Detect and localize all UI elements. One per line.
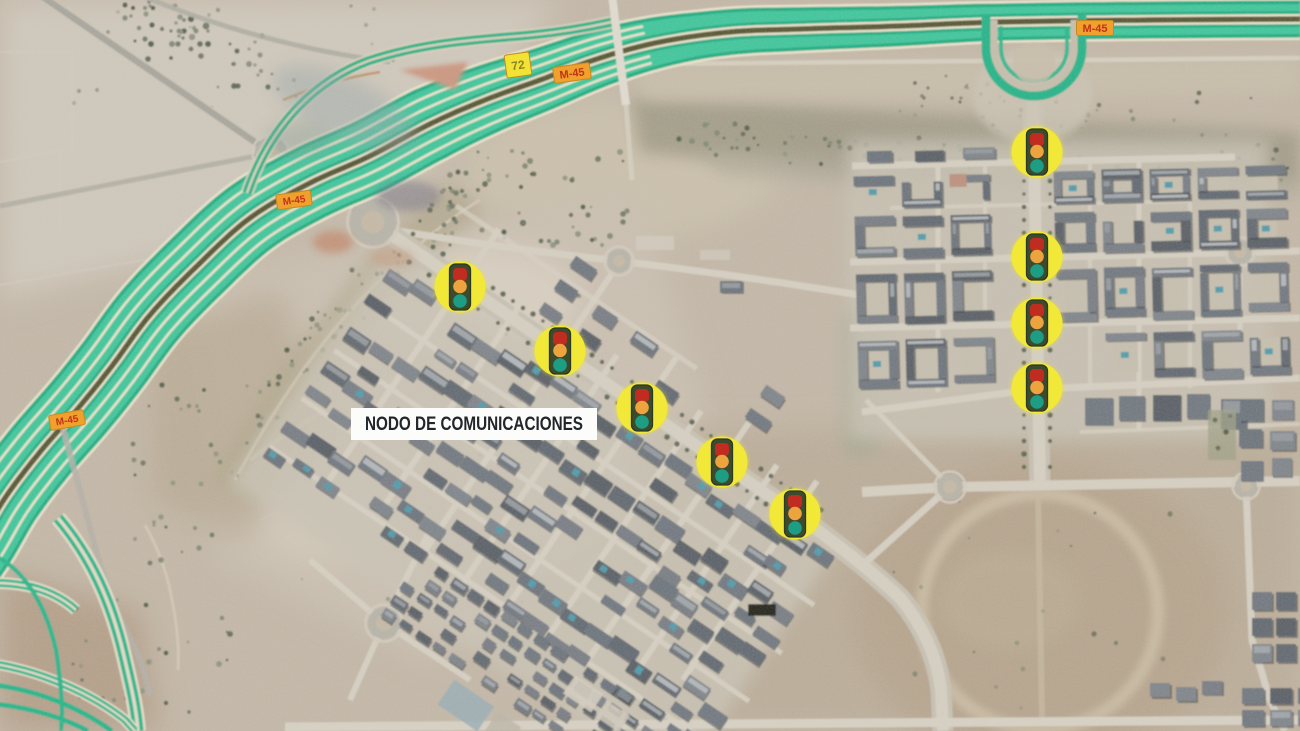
svg-text:72: 72 xyxy=(510,57,525,73)
svg-text:NODO DE COMUNICACIONES: NODO DE COMUNICACIONES xyxy=(365,414,583,435)
svg-text:M-45: M-45 xyxy=(1082,23,1107,35)
